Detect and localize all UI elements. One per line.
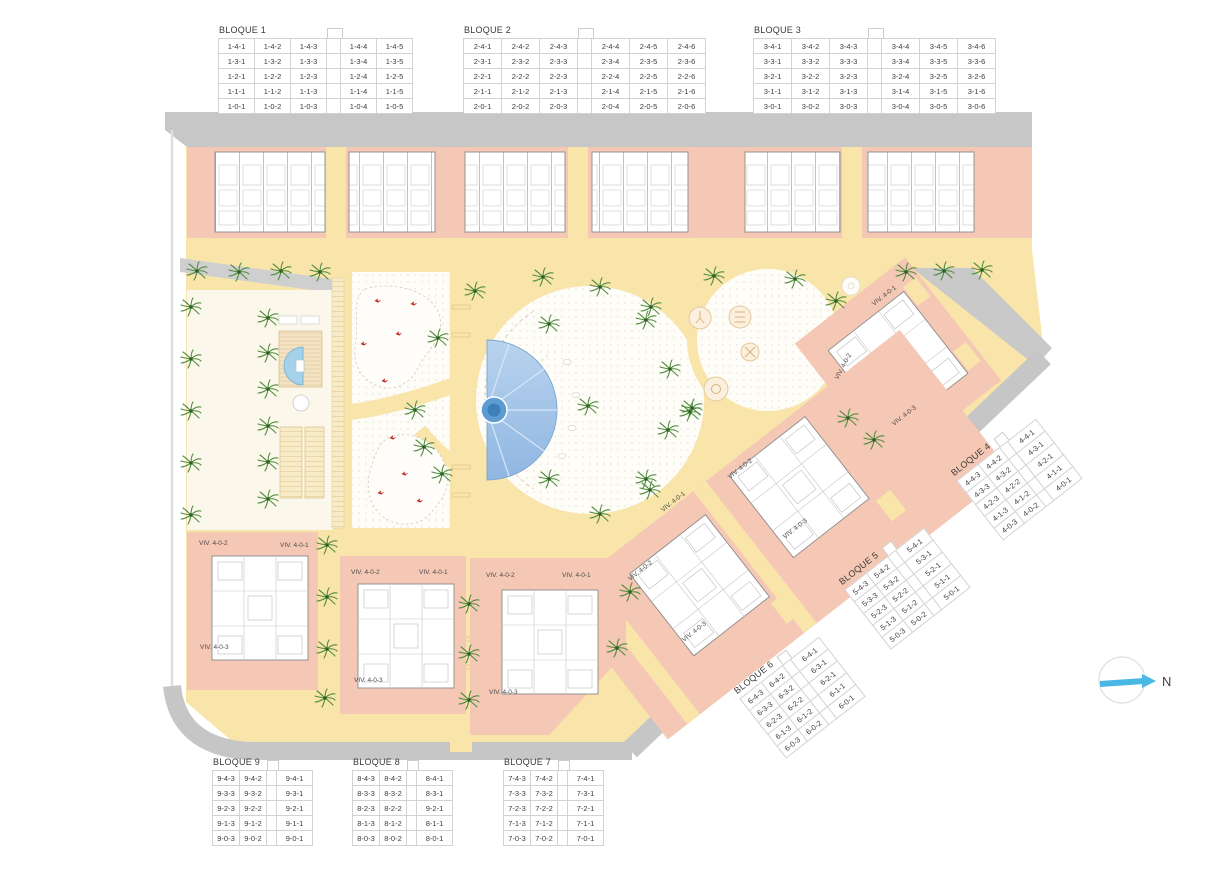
viv-label: VIV. 4-0-3 bbox=[354, 677, 383, 684]
unit-cell: 8-4-2 bbox=[380, 771, 407, 786]
unit-cell: 2-3-1 bbox=[464, 54, 502, 69]
unit-cell: 2-0-1 bbox=[464, 99, 502, 114]
bloque-8-table-group: BLOQUE 8 8-4-38-4-28-4-18-3-38-3-28-3-18… bbox=[352, 757, 453, 846]
unit-cell: 9-4-3 bbox=[213, 771, 240, 786]
unit-cell: 9-3-1 bbox=[277, 786, 313, 801]
table-gap-cell bbox=[327, 54, 341, 69]
table-gap-cell bbox=[558, 816, 568, 831]
site-plan-page: VIV. 4-0-1 VIV. 4-0-2 VIV. 4-0-3 VIV. 4-… bbox=[0, 0, 1220, 870]
unit-cell: 2-1-1 bbox=[464, 84, 502, 99]
unit-cell: 1-3-4 bbox=[341, 54, 377, 69]
table-gap-cell bbox=[868, 69, 882, 84]
top-plots bbox=[187, 147, 1032, 238]
unit-cell: 7-2-2 bbox=[531, 801, 558, 816]
unit-cell: 3-0-6 bbox=[958, 99, 996, 114]
unit-cell: 7-2-1 bbox=[568, 801, 604, 816]
unit-cell: 8-3-1 bbox=[417, 786, 453, 801]
unit-cell: 3-1-5 bbox=[920, 84, 958, 99]
unit-cell: 2-4-3 bbox=[540, 39, 578, 54]
unit-cell: 3-4-5 bbox=[920, 39, 958, 54]
table-gap-cell bbox=[327, 99, 341, 114]
table-gap-cell bbox=[407, 816, 417, 831]
unit-cell: 8-3-2 bbox=[380, 786, 407, 801]
unit-cell: 7-4-1 bbox=[568, 771, 604, 786]
unit-cell: 7-2-3 bbox=[504, 801, 531, 816]
unit-cell: 1-0-2 bbox=[255, 99, 291, 114]
unit-cell: 8-1-2 bbox=[380, 816, 407, 831]
unit-cell: 1-4-3 bbox=[291, 39, 327, 54]
gravel-garden bbox=[332, 272, 468, 528]
viv-label: VIV. 4-0-1 bbox=[280, 542, 309, 549]
unit-cell: 3-1-4 bbox=[882, 84, 920, 99]
viv-label: VIV. 4-0-3 bbox=[200, 644, 229, 651]
table-gap-cell bbox=[267, 801, 277, 816]
unit-cell: 3-1-6 bbox=[958, 84, 996, 99]
table-gap-cell bbox=[578, 99, 592, 114]
table-gap-cell bbox=[407, 831, 417, 846]
unit-cell: 9-4-1 bbox=[277, 771, 313, 786]
table-gap-cell bbox=[407, 786, 417, 801]
unit-cell: 1-4-2 bbox=[255, 39, 291, 54]
unit-cell: 1-0-3 bbox=[291, 99, 327, 114]
unit-cell: 3-2-5 bbox=[920, 69, 958, 84]
unit-cell: 1-1-4 bbox=[341, 84, 377, 99]
unit-cell: 8-0-2 bbox=[380, 831, 407, 846]
table-gap-cell bbox=[578, 39, 592, 54]
bloque-3-table-group: BLOQUE 3 3-4-13-4-23-4-33-4-43-4-53-4-63… bbox=[753, 25, 996, 114]
unit-cell: 7-0-2 bbox=[531, 831, 558, 846]
table-gap-cell bbox=[868, 39, 882, 54]
viv-label: VIV. 4-0-2 bbox=[351, 569, 380, 576]
unit-cell: 1-2-2 bbox=[255, 69, 291, 84]
unit-cell: 1-1-1 bbox=[219, 84, 255, 99]
unit-cell: 1-3-1 bbox=[219, 54, 255, 69]
bloque-7-title: BLOQUE 7 bbox=[504, 757, 604, 767]
unit-cell: 3-2-4 bbox=[882, 69, 920, 84]
unit-cell: 1-3-5 bbox=[377, 54, 413, 69]
unit-cell: 2-4-5 bbox=[630, 39, 668, 54]
unit-cell: 3-0-5 bbox=[920, 99, 958, 114]
unit-cell: 3-3-5 bbox=[920, 54, 958, 69]
unit-cell: 9-2-1 bbox=[417, 801, 453, 816]
unit-cell: 8-1-3 bbox=[353, 816, 380, 831]
unit-cell: 1-4-4 bbox=[341, 39, 377, 54]
compass-arrow bbox=[1100, 681, 1144, 684]
table-gap-cell bbox=[868, 54, 882, 69]
viv-label: VIV. 4-0-1 bbox=[562, 572, 591, 579]
unit-cell: 7-0-3 bbox=[504, 831, 531, 846]
unit-cell: 1-2-4 bbox=[341, 69, 377, 84]
unit-cell: 2-2-3 bbox=[540, 69, 578, 84]
unit-cell: 3-4-6 bbox=[958, 39, 996, 54]
unit-cell: 3-4-2 bbox=[792, 39, 830, 54]
unit-cell: 2-2-6 bbox=[668, 69, 706, 84]
unit-cell: 7-0-1 bbox=[568, 831, 604, 846]
bloque-8-title: BLOQUE 8 bbox=[353, 757, 453, 767]
unit-cell: 2-2-4 bbox=[592, 69, 630, 84]
unit-cell: 3-0-3 bbox=[830, 99, 868, 114]
unit-cell: 2-4-2 bbox=[502, 39, 540, 54]
unit-cell: 7-3-2 bbox=[531, 786, 558, 801]
unit-cell: 1-2-3 bbox=[291, 69, 327, 84]
table-gap-cell bbox=[868, 84, 882, 99]
unit-cell: 1-4-1 bbox=[219, 39, 255, 54]
unit-cell: 8-2-2 bbox=[380, 801, 407, 816]
unit-cell: 3-4-1 bbox=[754, 39, 792, 54]
unit-cell: 2-3-4 bbox=[592, 54, 630, 69]
unit-cell: 1-3-2 bbox=[255, 54, 291, 69]
unit-cell: 2-2-2 bbox=[502, 69, 540, 84]
bloque-3-table: 3-4-13-4-23-4-33-4-43-4-53-4-63-3-13-3-2… bbox=[753, 38, 996, 114]
unit-cell: 7-4-2 bbox=[531, 771, 558, 786]
bloque-2-table: 2-4-12-4-22-4-32-4-42-4-52-4-62-3-12-3-2… bbox=[463, 38, 706, 114]
unit-cell: 9-3-2 bbox=[240, 786, 267, 801]
unit-cell: 8-0-1 bbox=[417, 831, 453, 846]
unit-cell: 2-0-5 bbox=[630, 99, 668, 114]
table-gap-cell bbox=[578, 69, 592, 84]
unit-cell: 9-0-2 bbox=[240, 831, 267, 846]
table-gap-cell bbox=[558, 801, 568, 816]
viv-label: VIV. 4-0-2 bbox=[486, 572, 515, 579]
unit-cell: 2-3-2 bbox=[502, 54, 540, 69]
unit-cell: 3-1-2 bbox=[792, 84, 830, 99]
table-gap-cell bbox=[558, 771, 568, 786]
unit-cell: 3-3-6 bbox=[958, 54, 996, 69]
unit-cell: 9-3-3 bbox=[213, 786, 240, 801]
unit-cell: 8-4-1 bbox=[417, 771, 453, 786]
unit-cell: 2-4-4 bbox=[592, 39, 630, 54]
table-gap-cell bbox=[267, 771, 277, 786]
unit-cell: 2-2-1 bbox=[464, 69, 502, 84]
unit-cell: 1-0-5 bbox=[377, 99, 413, 114]
central-plaza bbox=[470, 280, 710, 520]
unit-cell: 1-0-4 bbox=[341, 99, 377, 114]
unit-cell: 2-1-3 bbox=[540, 84, 578, 99]
unit-cell: 2-3-6 bbox=[668, 54, 706, 69]
unit-cell: 3-0-4 bbox=[882, 99, 920, 114]
unit-cell: 1-0-1 bbox=[219, 99, 255, 114]
unit-cell: 8-3-3 bbox=[353, 786, 380, 801]
unit-cell: 2-1-4 bbox=[592, 84, 630, 99]
unit-cell: 2-0-6 bbox=[668, 99, 706, 114]
unit-cell: 3-3-2 bbox=[792, 54, 830, 69]
unit-cell: 2-4-6 bbox=[668, 39, 706, 54]
unit-cell: 1-4-5 bbox=[377, 39, 413, 54]
unit-cell: 3-3-1 bbox=[754, 54, 792, 69]
unit-cell: 8-1-1 bbox=[417, 816, 453, 831]
unit-cell: 3-3-4 bbox=[882, 54, 920, 69]
unit-cell: 9-2-3 bbox=[213, 801, 240, 816]
unit-cell: 9-0-1 bbox=[277, 831, 313, 846]
unit-cell: 7-3-1 bbox=[568, 786, 604, 801]
unit-cell: 3-2-3 bbox=[830, 69, 868, 84]
unit-cell: 3-4-3 bbox=[830, 39, 868, 54]
bloque-1-title: BLOQUE 1 bbox=[219, 25, 413, 35]
unit-cell: 3-0-2 bbox=[792, 99, 830, 114]
table-gap-cell bbox=[578, 54, 592, 69]
unit-cell: 9-1-2 bbox=[240, 816, 267, 831]
unit-cell: 7-3-3 bbox=[504, 786, 531, 801]
viv-label: VIV. 4-0-3 bbox=[489, 689, 518, 696]
unit-cell: 2-0-3 bbox=[540, 99, 578, 114]
table-gap-cell bbox=[578, 84, 592, 99]
unit-cell: 2-1-5 bbox=[630, 84, 668, 99]
table-gap-cell bbox=[267, 786, 277, 801]
garden-beds bbox=[280, 427, 302, 498]
unit-cell: 9-2-2 bbox=[240, 801, 267, 816]
unit-cell: 2-3-3 bbox=[540, 54, 578, 69]
bloque-1-table: 1-4-11-4-21-4-31-4-41-4-51-3-11-3-21-3-3… bbox=[218, 38, 413, 114]
table-gap-cell bbox=[407, 801, 417, 816]
unit-cell: 1-1-5 bbox=[377, 84, 413, 99]
unit-cell: 9-0-3 bbox=[213, 831, 240, 846]
viv-label: VIV. 4-0-1 bbox=[419, 569, 448, 576]
table-gap-cell bbox=[558, 831, 568, 846]
compass-north-label: N bbox=[1162, 674, 1171, 689]
table-gap-cell bbox=[327, 39, 341, 54]
unit-cell: 3-2-1 bbox=[754, 69, 792, 84]
table-gap-cell bbox=[327, 69, 341, 84]
unit-cell: 1-3-3 bbox=[291, 54, 327, 69]
unit-cell: 2-1-2 bbox=[502, 84, 540, 99]
unit-cell: 9-1-1 bbox=[277, 816, 313, 831]
unit-cell: 9-4-2 bbox=[240, 771, 267, 786]
unit-cell: 7-1-1 bbox=[568, 816, 604, 831]
table-gap-cell bbox=[558, 786, 568, 801]
unit-cell: 3-4-4 bbox=[882, 39, 920, 54]
unit-cell: 8-2-3 bbox=[353, 801, 380, 816]
table-gap-cell bbox=[407, 771, 417, 786]
left-garden-zone bbox=[187, 290, 333, 530]
unit-cell: 2-2-5 bbox=[630, 69, 668, 84]
unit-cell: 2-0-2 bbox=[502, 99, 540, 114]
unit-cell: 2-3-5 bbox=[630, 54, 668, 69]
unit-cell: 8-4-3 bbox=[353, 771, 380, 786]
table-gap-cell bbox=[327, 84, 341, 99]
bloque-8-table: 8-4-38-4-28-4-18-3-38-3-28-3-18-2-38-2-2… bbox=[352, 770, 453, 846]
table-gap-cell bbox=[267, 831, 277, 846]
unit-cell: 8-0-3 bbox=[353, 831, 380, 846]
bloque-7-table-group: BLOQUE 7 7-4-37-4-27-4-17-3-37-3-27-3-17… bbox=[503, 757, 604, 846]
unit-cell: 3-2-2 bbox=[792, 69, 830, 84]
unit-cell: 1-1-3 bbox=[291, 84, 327, 99]
table-gap-cell bbox=[267, 816, 277, 831]
unit-cell: 2-4-1 bbox=[464, 39, 502, 54]
bloque-2-table-group: BLOQUE 2 2-4-12-4-22-4-32-4-42-4-52-4-62… bbox=[463, 25, 706, 114]
unit-cell: 7-4-3 bbox=[504, 771, 531, 786]
unit-cell: 1-1-2 bbox=[255, 84, 291, 99]
unit-cell: 7-1-2 bbox=[531, 816, 558, 831]
bloque-9-table: 9-4-39-4-29-4-19-3-39-3-29-3-19-2-39-2-2… bbox=[212, 770, 313, 846]
unit-cell: 2-0-4 bbox=[592, 99, 630, 114]
unit-cell: 3-3-3 bbox=[830, 54, 868, 69]
unit-cell: 7-1-3 bbox=[504, 816, 531, 831]
viv-label: VIV. 4-0-2 bbox=[199, 540, 228, 547]
unit-cell: 9-1-3 bbox=[213, 816, 240, 831]
unit-cell: 3-0-1 bbox=[754, 99, 792, 114]
table-gap-cell bbox=[868, 99, 882, 114]
unit-cell: 1-2-1 bbox=[219, 69, 255, 84]
compass: N bbox=[1099, 657, 1171, 703]
unit-cell: 9-2-1 bbox=[277, 801, 313, 816]
bloque-7-table: 7-4-37-4-27-4-17-3-37-3-27-3-17-2-37-2-2… bbox=[503, 770, 604, 846]
bloque-1-table-group: BLOQUE 1 1-4-11-4-21-4-31-4-41-4-51-3-11… bbox=[218, 25, 413, 114]
bloque-9-table-group: BLOQUE 9 9-4-39-4-29-4-19-3-39-3-29-3-19… bbox=[212, 757, 313, 846]
unit-cell: 3-1-1 bbox=[754, 84, 792, 99]
unit-cell: 2-1-6 bbox=[668, 84, 706, 99]
bloque-9-title: BLOQUE 9 bbox=[213, 757, 313, 767]
unit-cell: 3-2-6 bbox=[958, 69, 996, 84]
unit-cell: 3-1-3 bbox=[830, 84, 868, 99]
unit-cell: 1-2-5 bbox=[377, 69, 413, 84]
